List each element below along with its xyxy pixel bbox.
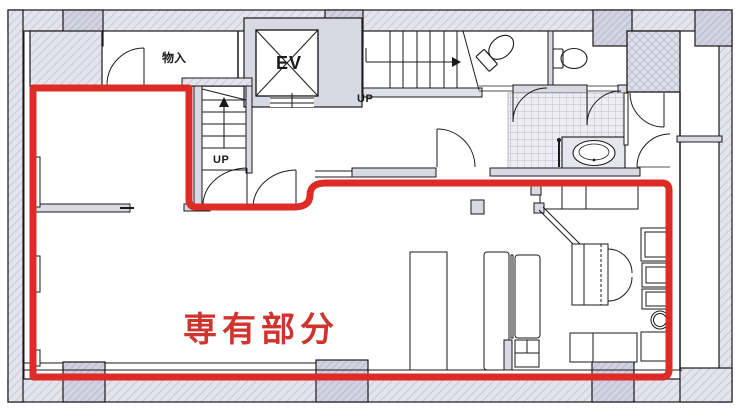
wall-right — [719, 10, 732, 402]
toilet — [476, 31, 518, 72]
storage-boxes — [515, 340, 539, 367]
wall-mass-top-left — [30, 31, 102, 86]
elevator-label: EV — [276, 53, 302, 73]
floor-plan-canvas: 物入 EV UP — [0, 0, 735, 410]
door-hall-mainroom-2 — [253, 170, 296, 207]
wall-left — [8, 10, 23, 402]
wall-stub — [471, 200, 484, 214]
corridor-wall — [677, 136, 722, 142]
wall-stub — [534, 203, 544, 213]
wc-wall — [618, 85, 627, 93]
wall-stub — [504, 340, 512, 370]
elevator: EV — [244, 18, 362, 108]
pillar — [63, 362, 105, 402]
desk — [570, 333, 637, 362]
washroom — [508, 93, 628, 170]
pillar — [695, 10, 732, 46]
desk-with-chair — [572, 244, 632, 305]
floor-plan: 物入 EV UP — [0, 0, 735, 410]
wc-wall — [513, 85, 587, 93]
door-corridor-washroom — [630, 93, 664, 127]
stairs-up-arrow — [366, 48, 461, 67]
furniture — [410, 183, 672, 370]
inner-stairs-up-label: UP — [213, 154, 229, 166]
washroom-wall-left — [624, 93, 628, 145]
wc-partition — [548, 31, 553, 88]
mid-walls — [315, 168, 640, 177]
interior-wall-left — [30, 157, 134, 366]
door-hall-mainroom — [437, 129, 475, 167]
door-stairs-mainroom — [203, 168, 247, 205]
cabinet-counter — [540, 183, 638, 209]
toilet — [553, 49, 587, 69]
stairs-up-label: UP — [357, 93, 373, 105]
pillar — [316, 360, 368, 402]
storage-label: 物入 — [162, 50, 186, 65]
pillar — [592, 360, 634, 402]
door-balcony — [637, 134, 670, 167]
pillar — [593, 10, 632, 46]
inner-stairs-up-arrow — [219, 97, 229, 148]
storage-door — [107, 48, 144, 85]
work-table — [515, 255, 540, 338]
exclusive-area-label: 専有部分 — [183, 311, 339, 349]
wall-step-bottom-right — [680, 368, 732, 402]
work-table — [410, 252, 447, 370]
main-stairs — [363, 31, 482, 97]
work-table — [511, 255, 513, 338]
pipe-shaft — [627, 31, 680, 92]
